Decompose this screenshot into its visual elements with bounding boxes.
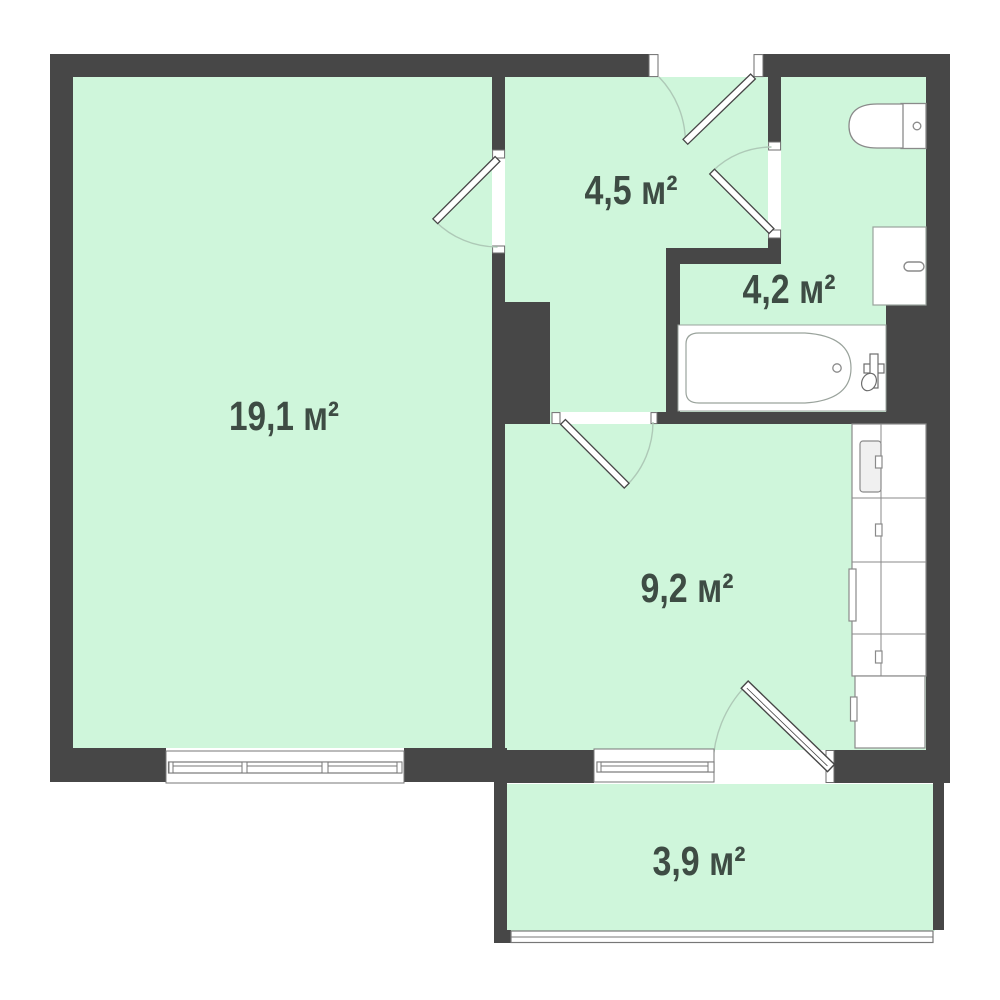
svg-text:4,5 м²: 4,5 м²: [585, 167, 678, 213]
svg-text:4,2 м²: 4,2 м²: [743, 266, 836, 312]
svg-text:3,9 м²: 3,9 м²: [653, 838, 746, 884]
svg-text:19,1 м²: 19,1 м²: [229, 393, 339, 439]
svg-text:9,2 м²: 9,2 м²: [641, 565, 734, 611]
